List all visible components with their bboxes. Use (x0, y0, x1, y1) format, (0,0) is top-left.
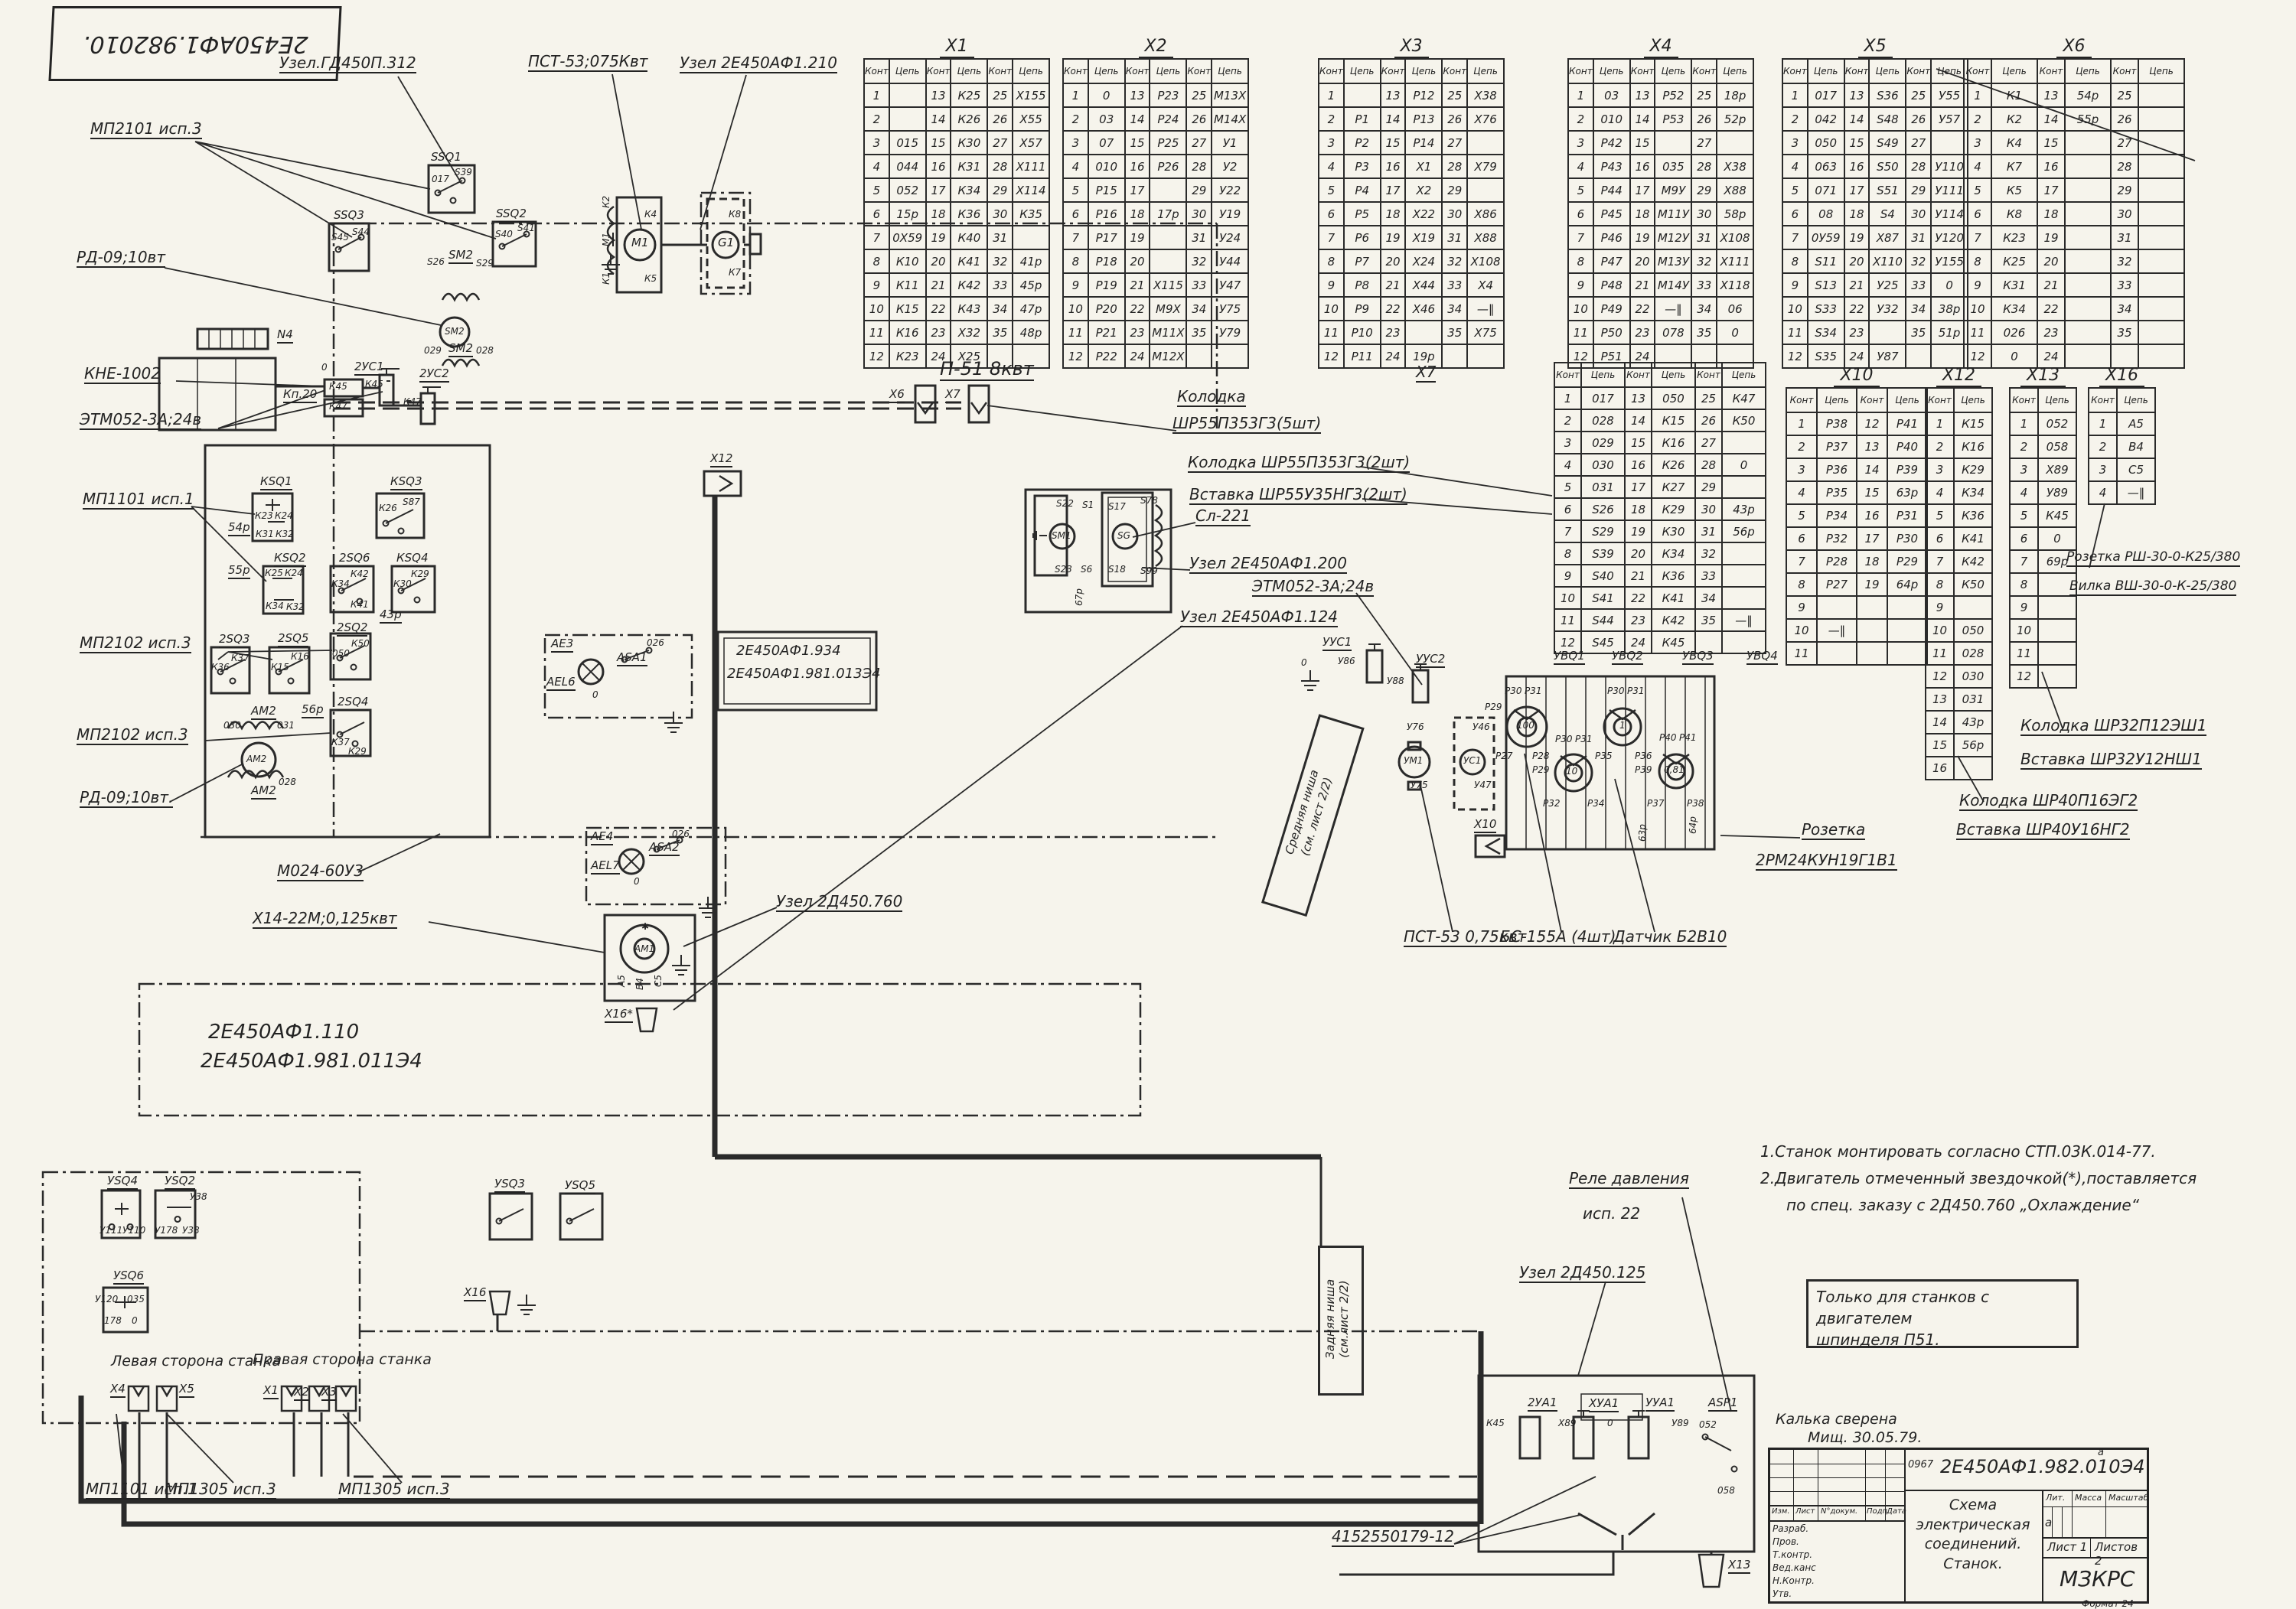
note-3: по спец. заказу с 2Д450.760 „Охлаждение“ (1760, 1192, 2197, 1219)
pin-s41: S41 (517, 223, 535, 233)
pin-cell (1722, 542, 1766, 565)
pin-cell: У75 (1212, 297, 1248, 321)
pin-cell: М9У (1655, 178, 1691, 202)
pin-cell: 32 (1906, 249, 1931, 273)
pin-cell: 19 (1381, 226, 1406, 249)
pin-table-header: Цепь (1581, 363, 1625, 387)
pin-cell: 10 (1063, 297, 1088, 321)
pin-p32: Р32 (1543, 799, 1561, 809)
pin-cell (2138, 83, 2184, 107)
pin-cell: 24 (1381, 344, 1406, 368)
pin-p37: Р37 (1647, 799, 1665, 809)
pin-cell: 22 (1844, 297, 1870, 321)
pin-k36: К36 (211, 663, 230, 673)
pin-cell (2065, 202, 2111, 226)
pin-table-header: Цепь (1991, 59, 2037, 83)
pin-cell: Р1 (1344, 107, 1381, 131)
pin-cell: 24 (1125, 344, 1150, 368)
pin-cell: М11Х (1150, 321, 1186, 344)
pin-s23: S23 (1055, 565, 1072, 575)
pin-cell (1722, 432, 1766, 454)
col-data: Дата (1887, 1507, 1906, 1516)
pin-cell: 6 (1063, 202, 1088, 226)
pin-cell (2065, 344, 2111, 368)
pin-cell: 11 (864, 321, 889, 344)
pin-table-header: Конт (864, 59, 889, 83)
pin-cell: 1 (1063, 83, 1088, 107)
pin-cell: 15 (1630, 131, 1655, 155)
pin-cell: К23 (889, 344, 926, 368)
pin-cell: 23 (1381, 321, 1406, 344)
pin-cell: К34 (951, 178, 987, 202)
pin-cell: —‖ (1467, 297, 1504, 321)
pin-cell: S50 (1869, 155, 1906, 178)
col-list: Лист (1795, 1507, 1815, 1516)
pin-cell: S40 (1581, 565, 1625, 587)
pin-cell: 10 (864, 297, 889, 321)
pin-cell: М9Х (1150, 297, 1186, 321)
pin-cell: 7 (1568, 226, 1593, 249)
pin-cell: 6 (1786, 527, 1817, 550)
pin-cell (2138, 321, 2184, 344)
only-for-p51-box: Только для станков с двигателем шпинделя… (1806, 1279, 2079, 1348)
pin-cell: 23 (926, 321, 951, 344)
pin-cell: 10 (1319, 297, 1344, 321)
pin-cell (2138, 202, 2184, 226)
pin-table: КонтЦепь105220583Х894У895К4560769р891011… (2009, 387, 2077, 689)
valve-ybq4: УВQ4 (1746, 650, 1778, 665)
pin-table-header: Цепь (1722, 363, 1766, 387)
switch-asp1: АSР1 (1708, 1397, 1737, 1412)
pin-cell: 10 (1786, 619, 1817, 642)
pin-table-header: Цепь (1954, 388, 1992, 412)
pin-cell (1467, 178, 1504, 202)
pin-k41: К41 (351, 600, 369, 610)
pin-k42: К42 (351, 569, 369, 579)
connector-table-x5: Х5КонтЦепьКонтЦепьКонтЦепь101713S3625У55… (1782, 37, 1968, 369)
pin-cell: Р31 (1887, 504, 1927, 527)
pin-cell: У57 (1931, 107, 1968, 131)
pin-cell: Р49 (1593, 297, 1630, 321)
doc-number-sup: а (2098, 1447, 2104, 1458)
pin-cell: 4 (2010, 481, 2038, 504)
pin-table-header: Цепь (1013, 59, 1049, 83)
pin-cell: Р17 (1088, 226, 1125, 249)
pin-table-header: Конт (1786, 388, 1817, 412)
pin-cell (2065, 226, 2111, 249)
selsyn-10: 10 (1566, 767, 1577, 777)
pin-cell: 31 (1695, 520, 1722, 542)
pin-cell (1344, 83, 1381, 107)
pin-cell: 6 (1554, 498, 1581, 520)
pin-y47: У47 (1474, 780, 1492, 790)
pin-cell: 9 (1554, 565, 1581, 587)
pin-cell: 28 (1186, 155, 1212, 178)
pin-cell: Р41 (1887, 412, 1927, 435)
pin-cell: S49 (1869, 131, 1906, 155)
pin-cell: К5 (1991, 178, 2037, 202)
pin-cell: У25 (1869, 273, 1906, 297)
pin-cell: 11 (1568, 321, 1593, 344)
drawing-title: Схема электрическаясоединений.Станок. (1908, 1496, 2038, 1575)
pin-cell: Р36 (1817, 458, 1857, 481)
pin-cell: 4 (1568, 155, 1593, 178)
pin-cell: 20 (926, 249, 951, 273)
pin-cell (1869, 321, 1906, 344)
pin-table: КонтЦепьКонтЦепьКонтЦепь10313Р522518р201… (1567, 58, 1754, 369)
pin-cell: 28 (1906, 155, 1931, 178)
pin-cell: 17 (1630, 178, 1655, 202)
pin-cell: 4 (1063, 155, 1088, 178)
pin-cell: S26 (1581, 498, 1625, 520)
pin-cell: 2 (1568, 107, 1593, 131)
pin-052: 052 (1699, 1420, 1717, 1430)
switch-2sq5-label: 2SQ5 (278, 633, 308, 647)
pin-table: КонтЦепьКонтЦепьКонтЦепь10171305025К4720… (1554, 362, 1766, 654)
row-razrab: Разраб. (1773, 1523, 1808, 1534)
pin-cell: 17 (1381, 178, 1406, 202)
pin-cell: Р15 (1088, 178, 1125, 202)
pin-cell (2138, 178, 2184, 202)
connector-table-x6: Х6КонтЦепьКонтЦепьКонтЦепь1К11354р252К21… (1963, 37, 2185, 369)
pin-cell: Х44 (1405, 273, 1442, 297)
row-utv: Утв. (1773, 1588, 1792, 1599)
pin-cell: Р8 (1344, 273, 1381, 297)
pin-cell: Х155 (1013, 83, 1049, 107)
pin-cell: 14 (1625, 409, 1652, 432)
wire-43r: 43р (380, 609, 402, 624)
pin-cell: 8 (1782, 249, 1808, 273)
motor-sm2: SМ2 (445, 327, 465, 337)
pin-cell (1150, 178, 1186, 202)
pin-cell (1150, 226, 1186, 249)
connector-x4: Х4 (110, 1383, 126, 1398)
pin-cell: 5 (1063, 178, 1088, 202)
pin-cell: 11 (1786, 642, 1817, 665)
pin-cell: 8 (1926, 573, 1954, 596)
pin-s29: S29 (476, 259, 494, 269)
pin-k7: К7 (729, 268, 741, 278)
pin-cell: 27 (1186, 131, 1212, 155)
pin-cell: 21 (2037, 273, 2065, 297)
pin-cell: 11 (2010, 642, 2038, 665)
pin-cell: 12 (1063, 344, 1088, 368)
pin-cell: 22 (1625, 587, 1652, 609)
pin-cell: 5 (1782, 178, 1808, 202)
pin-cell: 13 (1125, 83, 1150, 107)
pin-cell (1857, 619, 1887, 642)
pin-cell: 29 (1691, 178, 1717, 202)
pin-cell: 9 (1319, 273, 1344, 297)
pin-cell: 14 (1381, 107, 1406, 131)
pin-cell: Р5 (1344, 202, 1381, 226)
pin-cell: 042 (1808, 107, 1844, 131)
callout-pst53: ПСТ-53;075Квт (528, 54, 647, 72)
pin-table-header: Цепь (2038, 388, 2076, 412)
pin-cell: 14 (1630, 107, 1655, 131)
callout-datchik-b2v10: Датчик Б2В10 (1613, 929, 1727, 947)
pin-cell: 029 (1581, 432, 1625, 454)
pin-030: 030 (223, 721, 241, 731)
motor-am2: АМ2 (246, 754, 266, 764)
pin-p30a: Р30 (1505, 686, 1522, 696)
motor-sm1: SМ1 (1052, 531, 1071, 541)
pin-cell: 25 (1695, 387, 1722, 409)
pin-s44: S44 (352, 227, 370, 237)
pin-cell: 18 (1844, 202, 1870, 226)
pin-cell: Р43 (1593, 155, 1630, 178)
pin-cell: У89 (2038, 481, 2076, 504)
pin-cell: S48 (1869, 107, 1906, 131)
wire-64r: 64р (1688, 816, 1698, 834)
table-title: Х10 (1786, 366, 1928, 385)
pin-cell: 29 (1906, 178, 1931, 202)
pin-cell: 031 (1581, 476, 1625, 498)
pin-cell: Р50 (1593, 321, 1630, 344)
pin-cell: 19 (1125, 226, 1150, 249)
pin-k23: К23 (255, 511, 273, 521)
pin-cell: 13 (926, 83, 951, 107)
pin-k31: К31 (256, 529, 274, 539)
pin-cell: S11 (1808, 249, 1844, 273)
pin-s99: S99 (1140, 566, 1158, 576)
pin-cell: 9 (1964, 273, 1991, 297)
connector-x10: Х10 (1474, 819, 1496, 833)
pin-cell: 18 (1381, 202, 1406, 226)
pin-cell: 32 (2111, 249, 2138, 273)
pin-cell: 19 (926, 226, 951, 249)
pin-cell: 27 (987, 131, 1013, 155)
pin-cell: 3 (1964, 131, 1991, 155)
pin-cell: 26 (987, 107, 1013, 131)
pin-cell: 13 (1625, 387, 1652, 409)
pin-cell: У24 (1212, 226, 1248, 249)
callout-mp2101: МП2101 исп.3 (90, 121, 202, 139)
pin-cell: К50 (1722, 409, 1766, 432)
col-ndokum: N°докум. (1821, 1507, 1857, 1516)
pin-cell: 7 (1786, 550, 1817, 573)
terminal-n4: N4 (277, 329, 293, 344)
callout-uzel760: Узел 2Д450.760 (776, 894, 902, 912)
pin-cell: Х111 (1717, 249, 1753, 273)
pin-cell: 11 (1319, 321, 1344, 344)
pin-cell: 4 (1964, 155, 1991, 178)
pin-cell (2138, 155, 2184, 178)
pin-cell: 26 (1906, 107, 1931, 131)
pin-table-header: Цепь (1817, 388, 1857, 412)
pin-cell: 8 (1568, 249, 1593, 273)
pin-c5: С5 (654, 975, 664, 987)
pin-cell: К26 (1652, 454, 1695, 476)
callout-uzel124: Узел 2Е450АФ1.124 (1180, 609, 1338, 627)
pin-cell: 16 (2037, 155, 2065, 178)
callout-kolodka5-2: ШР55П353Г3(5шт) (1172, 415, 1321, 434)
switch-2sq3-label: 2SQ3 (219, 634, 249, 648)
pin-cell: 21 (1844, 273, 1870, 297)
pin-cell: 14 (1844, 107, 1870, 131)
pin-cell (2138, 131, 2184, 155)
pin-cell: 51р (1931, 321, 1968, 344)
table-title: Х6 (1963, 37, 2185, 56)
pin-cell: 33 (1695, 565, 1722, 587)
selsyn-081: 0,81 (1664, 765, 1684, 775)
pin-cell: 18 (1630, 202, 1655, 226)
pin-cell: 21 (1630, 273, 1655, 297)
pin-cell: Х19 (1405, 226, 1442, 249)
pin-cell: Х86 (1467, 202, 1504, 226)
pin-k50: К50 (351, 639, 370, 649)
pin-cell: 34 (2111, 297, 2138, 321)
pin-cell: 14 (1857, 458, 1887, 481)
pin-cell: 5 (1786, 504, 1817, 527)
connector-table-x12: Х12КонтЦепь1К152К163К294К345К366К417К428… (1925, 366, 1993, 780)
pin-cell: 8 (1554, 542, 1581, 565)
pin-cell: Р30 (1887, 527, 1927, 550)
organization: МЗКРС (2060, 1566, 2135, 1591)
pin-k37b: К37 (331, 738, 350, 748)
generator-sg: SG (1117, 531, 1130, 541)
callout-pravaya-storona: Правая сторона станка (253, 1353, 432, 1368)
pin-cell: Х115 (1150, 273, 1186, 297)
lit-value: а (2045, 1516, 2052, 1529)
pin-cell: К40 (951, 226, 987, 249)
pin-cell: Р39 (1887, 458, 1927, 481)
pin-cell: К30 (951, 131, 987, 155)
pin-cell: 33 (1442, 273, 1467, 297)
pin-cell: 3 (2089, 458, 2117, 481)
pin-p30b: Р30 (1555, 734, 1573, 744)
pin-k1: К1 (602, 272, 612, 285)
pin-cell: 8 (1786, 573, 1817, 596)
pin-cell (2065, 178, 2111, 202)
pin-cell: 1 (1786, 412, 1817, 435)
pin-cell: Х24 (1405, 249, 1442, 273)
pin-cell: К36 (1652, 565, 1695, 587)
pin-y88: У88 (1387, 676, 1404, 686)
pin-cell: 20 (2037, 249, 2065, 273)
pin-table-header: Цепь (1655, 59, 1691, 83)
pin-cell: 31 (1906, 226, 1931, 249)
valve-ybq1: УВQ1 (1554, 650, 1585, 665)
pin-p36: Р36 (1635, 751, 1652, 761)
pin-table: КонтЦепь1К152К163К294К345К366К417К428К50… (1925, 387, 1993, 780)
pin-cell: 34 (1906, 297, 1931, 321)
pin-cell: У2 (1212, 155, 1248, 178)
coil-sm2-lower: SМ2 (448, 343, 473, 357)
pin-cell: 3 (1782, 131, 1808, 155)
pin-cell: 7 (1063, 226, 1088, 249)
pin-cell: Р13 (1405, 107, 1442, 131)
pin-cell: 33 (1691, 273, 1717, 297)
pin-cell: К25 (951, 83, 987, 107)
pin-cell: 4 (2089, 481, 2117, 504)
pin-table-header: Цепь (2117, 388, 2155, 412)
pin-cell (1405, 321, 1442, 344)
pin-cell: Р23 (1150, 83, 1186, 107)
pin-table: КонтЦепьКонтЦепь1Р3812Р412Р3713Р403Р3614… (1786, 387, 1928, 666)
pin-cell: 17р (1150, 202, 1186, 226)
pin-035: 035 (127, 1295, 145, 1304)
pin-cell: 15 (1926, 734, 1954, 757)
pin-cell: Р26 (1150, 155, 1186, 178)
pin-cell: К31 (951, 155, 987, 178)
pin-017: 017 (432, 174, 449, 184)
pin-cell: 9 (1063, 273, 1088, 297)
pin-table-header: Цепь (2065, 59, 2111, 83)
pin-cell: 12 (1926, 665, 1954, 688)
pin-cell: Р18 (1088, 249, 1125, 273)
only-for-line1: Только для станков с двигателем (1816, 1286, 2069, 1329)
callout-vstavka-shr40: Вставка ШР40У16НГ2 (1956, 822, 2130, 840)
coil-am2-upper: АМ2 (251, 705, 276, 720)
winding-m1: М1 (602, 233, 614, 246)
pin-cell: К45 (2038, 504, 2076, 527)
pin-cell: 20 (1125, 249, 1150, 273)
pin-cell: 30 (2111, 202, 2138, 226)
callout-kolodka-shr40: Колодка ШР40П16ЭГ2 (1959, 793, 2138, 811)
pin-cell: 1 (1964, 83, 1991, 107)
pin-table: КонтЦепь1А52В43С54—‖ (2088, 387, 2156, 505)
pin-cell: 14 (926, 107, 951, 131)
pin-y111: У111 (99, 1226, 122, 1236)
table-title: Х12 (1925, 366, 1993, 385)
pin-cell: 030 (1954, 665, 1992, 688)
pin-p40: Р40 (1659, 733, 1677, 743)
pin-cell: Р38 (1817, 412, 1857, 435)
pin-cell: 0У59 (1808, 226, 1844, 249)
switch-ysq2-label: УSQ2 (165, 1175, 195, 1190)
pin-table-header: Конт (1625, 363, 1652, 387)
row-prov: Пров. (1773, 1536, 1799, 1547)
pin-table-header: Цепь (1808, 59, 1844, 83)
pin-cell: 35 (1186, 321, 1212, 344)
callout-rele-davleniya-2: исп. 22 (1583, 1206, 1640, 1222)
pin-table-header: Конт (926, 59, 951, 83)
pin-s45: S45 (331, 233, 349, 243)
pin-cell: 56р (1722, 520, 1766, 542)
pin-k25: К25 (265, 568, 283, 578)
pin-cell: 23 (1125, 321, 1150, 344)
valve-us1: УС1 (1463, 756, 1481, 766)
switch-asa2: АSА2 (649, 842, 680, 856)
pin-cell: 56р (1954, 734, 1992, 757)
pin-cell (1887, 642, 1927, 665)
pin-cell: Р29 (1887, 550, 1927, 573)
pin-cell: М13Х (1212, 83, 1248, 107)
callout-sl221: Сл-221 (1195, 508, 1251, 526)
pin-k29: К29 (411, 569, 429, 579)
pin-s40: S40 (495, 230, 513, 239)
pin-s18: S18 (1108, 565, 1126, 575)
pin-cell: 11 (1964, 321, 1991, 344)
label-2e450af1-981-013: 2Е450АФ1.981.013Э4 (727, 667, 881, 682)
pin-cell: М12Х (1150, 344, 1186, 368)
pin-cell: 1 (1554, 387, 1581, 409)
pin-cell: S35 (1808, 344, 1844, 368)
pin-cell: 07 (1088, 131, 1125, 155)
pin-cell: 14 (1125, 107, 1150, 131)
pin-y178: У178 (155, 1226, 178, 1236)
pin-cell: S36 (1869, 83, 1906, 107)
callout-mp1305-1: МП1305 исп.3 (165, 1481, 276, 1500)
callout-m024: М024-60У3 (277, 863, 364, 881)
callout-rele-davleniya-1: Реле давления (1569, 1171, 1689, 1189)
pin-cell: 3 (1786, 458, 1817, 481)
switch-2sq2-label: 2SQ2 (337, 622, 367, 637)
pin-cell: Х2 (1405, 178, 1442, 202)
pin-0e: 0 (132, 1316, 138, 1326)
star-mark: ✱ (641, 922, 649, 932)
